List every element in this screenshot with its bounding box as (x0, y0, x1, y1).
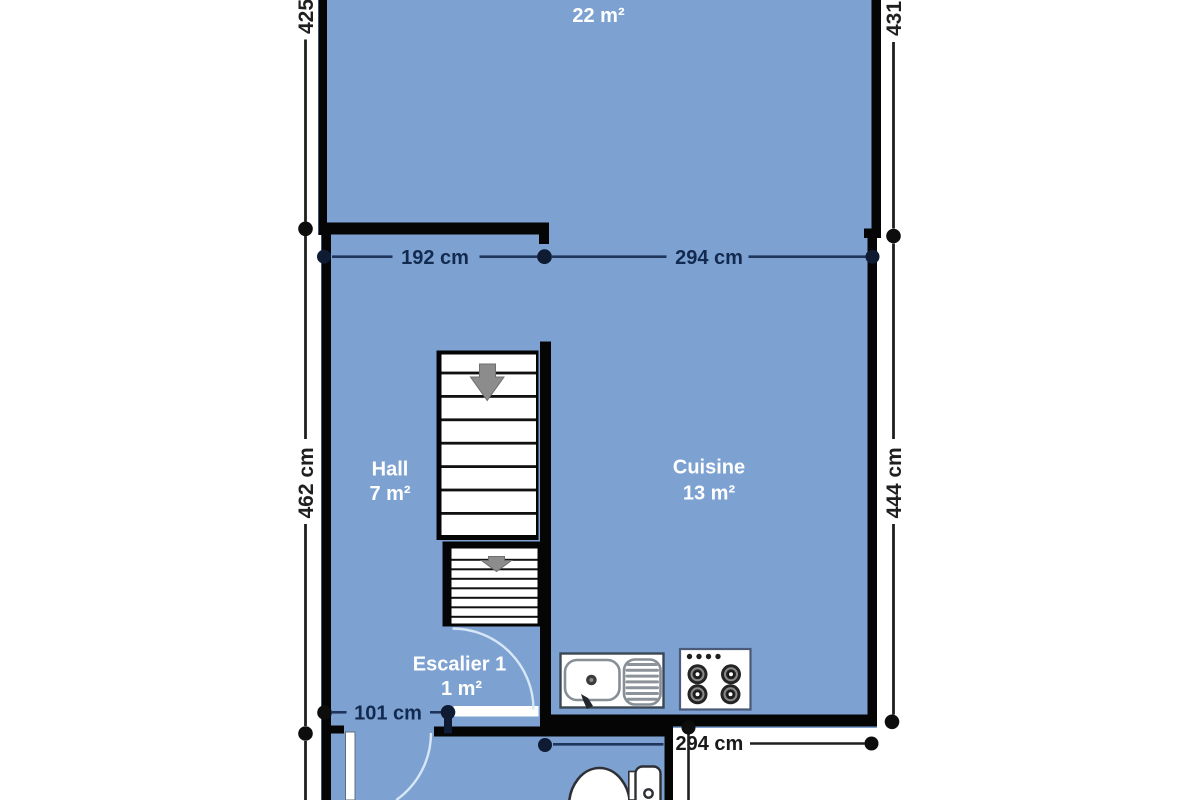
svg-text:7 m²: 7 m² (369, 483, 410, 505)
svg-text:425 cm: 425 cm (295, 0, 318, 34)
svg-text:192 cm: 192 cm (401, 247, 469, 269)
svg-text:462 cm: 462 cm (295, 447, 318, 518)
svg-text:22 m²: 22 m² (572, 5, 625, 27)
svg-text:444 cm: 444 cm (883, 447, 906, 518)
svg-text:Cuisine: Cuisine (673, 457, 745, 479)
svg-text:Escalier 1: Escalier 1 (413, 654, 506, 676)
svg-text:294 cm: 294 cm (675, 247, 743, 269)
svg-text:1 m²: 1 m² (441, 678, 482, 700)
svg-text:Hall: Hall (372, 459, 409, 481)
svg-text:101 cm: 101 cm (354, 703, 422, 725)
svg-text:431 cm: 431 cm (883, 0, 906, 36)
svg-text:13 m²: 13 m² (683, 483, 736, 505)
svg-text:294 cm: 294 cm (676, 733, 744, 755)
